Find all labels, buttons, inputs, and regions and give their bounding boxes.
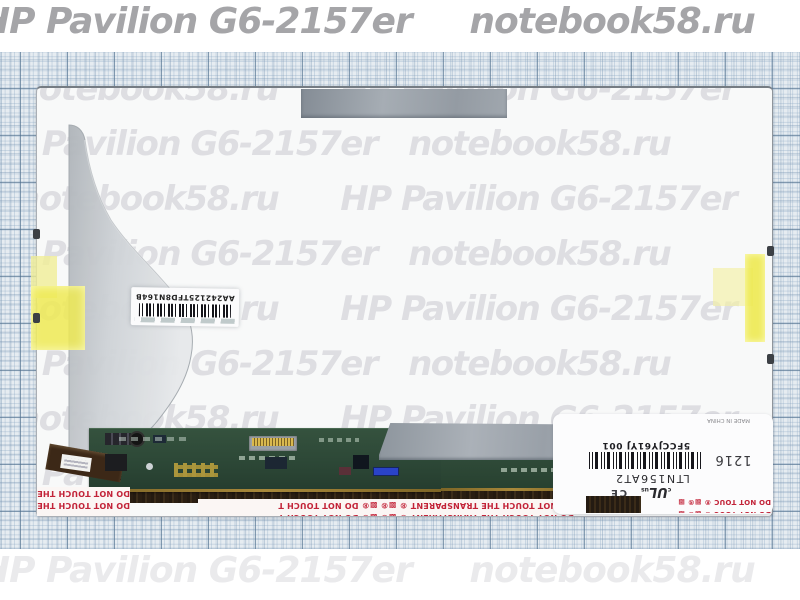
yellow-tape-right-strip (745, 254, 765, 342)
top-watermark-band: HP Pavilion G6-2157er notebook58.ru (0, 0, 800, 52)
dark-bonding-window (586, 496, 641, 513)
lcd-panel-rear: notebook58.ru HP Pavilion G6-2157erHP Pa… (36, 86, 773, 517)
made-in-text: MADE IN CHINA (706, 417, 750, 423)
serial-barcode-sticker: AA242125TFD8N164B (131, 287, 240, 327)
ic-chip (353, 455, 369, 469)
barcode (139, 303, 231, 318)
date-code: 1216 (709, 452, 757, 467)
warning-text: DO NOT TOUCH THE ® (37, 499, 130, 511)
barcode (589, 452, 701, 469)
mount-tab-right (767, 354, 774, 364)
model-info-label: MADE IN CHINA 5FCCJY61YJ 001 LTN156AT2 1… (553, 414, 773, 514)
product-photo-lcd-panel: HP Pavilion G6-2157er notebook58.ru HP P… (0, 0, 800, 600)
gold-pad-grid (174, 463, 218, 477)
lvds-connector (249, 436, 297, 451)
blue-jumper (373, 467, 399, 476)
warning-text: DO NOT TOUCH THE TRANSPARENT ® ▩® ▩® DO … (198, 499, 574, 511)
warning-text: DO NOT TOUC ® ▩® ▩ (641, 496, 771, 508)
mount-tab-left (33, 229, 40, 239)
sticker-code-text: AA242125TFD8N164B (131, 292, 239, 303)
warning-text: DO NOT TOUCH THE ® (37, 487, 130, 499)
flex-cable-connector (105, 454, 127, 471)
warning-strip-center: DO NOT TOUCH THE TRANSPARENT ® ▩® ▩® DO … (198, 499, 574, 516)
watermark-row: HP Pavilion G6-2157er notebook58.ru (0, 553, 755, 589)
mount-tab-right (767, 246, 774, 256)
warning-text: DO NOT TOUC ® ▩® ▩ (641, 508, 771, 513)
warning-strip-label: DO NOT TOUC ® ▩® ▩ DO NOT TOUC ® ▩® ▩ (641, 496, 771, 513)
watermark-row: HP Pavilion G6-2157er notebook58.ru (0, 4, 755, 40)
warning-text: DO NOT TOUCH THE TRANSPARENT ® ▩® ▩® DO … (198, 511, 574, 516)
sticker-small-print (135, 317, 235, 324)
ul-c: c (668, 486, 672, 493)
ul-us: us (641, 486, 649, 493)
serial-number: 5FCCJY61YJ 001 (586, 440, 706, 450)
bottom-watermark-band: HP Pavilion G6-2157er notebook58.ru (0, 549, 800, 600)
silkscreen-text (119, 437, 189, 441)
gray-tape-top (301, 89, 507, 118)
gold-contact-edge (89, 489, 441, 492)
connector-footprint (265, 457, 287, 469)
silkscreen-text (319, 438, 359, 442)
capacitor (339, 467, 351, 475)
mount-tab-left (33, 313, 40, 323)
test-pad (146, 463, 153, 470)
warning-strip-left: DO NOT TOUCH THE ® DO NOT TOUCH THE ® (37, 487, 130, 516)
